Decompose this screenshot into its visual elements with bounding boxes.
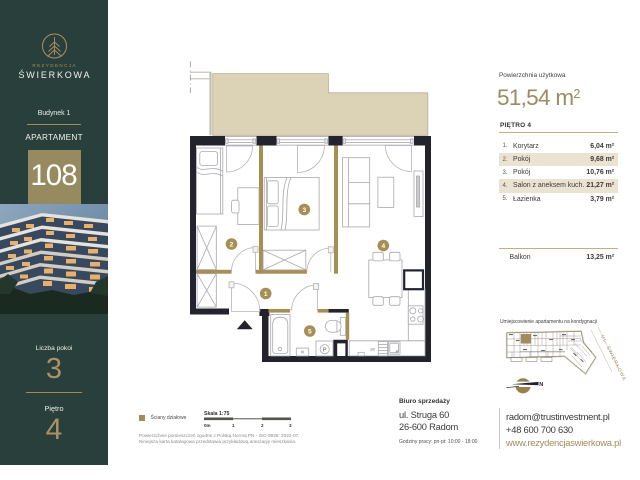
svg-text:3: 3: [302, 207, 306, 214]
svg-text:zm: zm: [370, 347, 375, 351]
svg-text:4: 4: [381, 243, 385, 250]
svg-text:2: 2: [230, 241, 234, 248]
svg-text:1: 1: [264, 291, 268, 298]
svg-text:P: P: [323, 347, 327, 353]
svg-text:5: 5: [308, 328, 312, 335]
